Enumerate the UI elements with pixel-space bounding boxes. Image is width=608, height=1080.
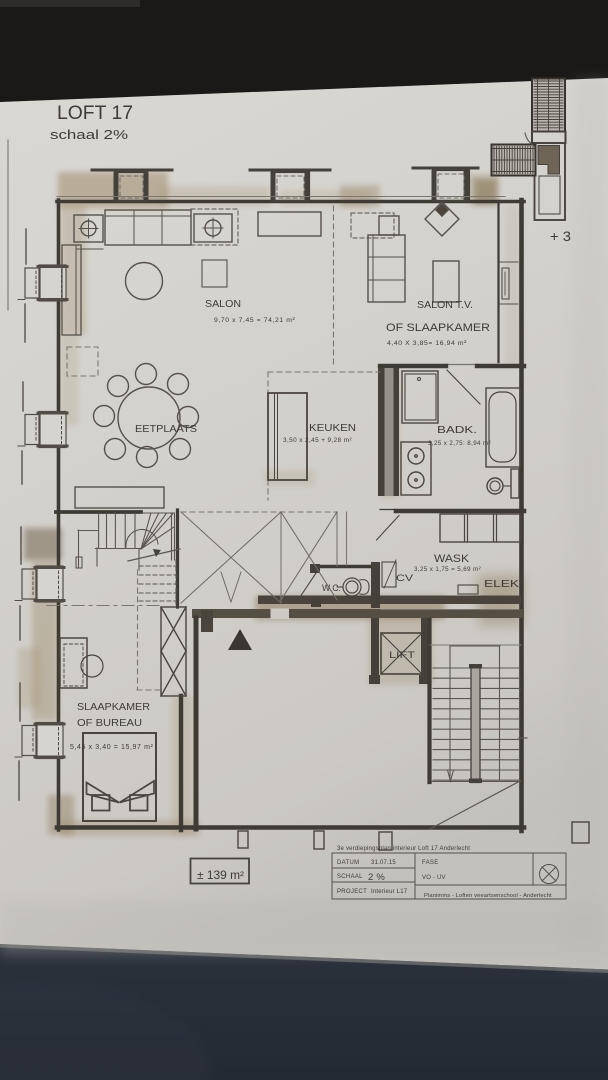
svg-text:+ 3: + 3 xyxy=(550,228,571,244)
svg-text:SCHAAL: SCHAAL xyxy=(337,874,363,880)
svg-text:3e verdiepingsplan interieur L: 3e verdiepingsplan interieur Loft 17 And… xyxy=(337,846,470,852)
svg-text:FASE: FASE xyxy=(422,860,439,866)
svg-text:31.07.15: 31.07.15 xyxy=(371,860,396,866)
svg-text:SLAAPKAMER: SLAAPKAMER xyxy=(77,702,150,713)
svg-text:4,40 X 3,85= 16,94 m²: 4,40 X 3,85= 16,94 m² xyxy=(387,340,467,347)
svg-text:Interieur L17: Interieur L17 xyxy=(371,889,408,895)
svg-text:EETPLAATS: EETPLAATS xyxy=(135,424,198,435)
svg-text:DATUM: DATUM xyxy=(337,860,359,866)
svg-text:3,25 x 1,75 = 5,69 m²: 3,25 x 1,75 = 5,69 m² xyxy=(414,566,481,573)
svg-text:PROJECT: PROJECT xyxy=(337,889,367,895)
svg-text:OF SLAAPKAMER: OF SLAAPKAMER xyxy=(386,322,490,334)
svg-text:BADK.: BADK. xyxy=(437,425,477,436)
svg-text:LOFT 17: LOFT 17 xyxy=(57,103,133,124)
svg-text:5,45 x 3,40 = 15,97 m²: 5,45 x 3,40 = 15,97 m² xyxy=(70,744,154,751)
svg-text:W.C.: W.C. xyxy=(322,583,341,594)
svg-text:OF BUREAU: OF BUREAU xyxy=(77,718,142,729)
svg-text:schaal 2%: schaal 2% xyxy=(50,127,129,142)
svg-text:3,50 x 2,45 + 9,28 m²: 3,50 x 2,45 + 9,28 m² xyxy=(283,437,352,444)
svg-text:9,70 x 7,45 = 74,21 m²: 9,70 x 7,45 = 74,21 m² xyxy=(214,317,296,324)
svg-text:SALON T.V.: SALON T.V. xyxy=(417,300,473,311)
svg-text:± 139 m²: ± 139 m² xyxy=(197,870,244,882)
svg-text:SALON: SALON xyxy=(205,299,241,310)
svg-text:VO - UV: VO - UV xyxy=(422,875,446,881)
svg-text:Planimms - Loften veeartsensch: Planimms - Loften veeartsenschool - Ande… xyxy=(424,893,552,899)
svg-text:3,25 x 2,75: 8,94 m²: 3,25 x 2,75: 8,94 m² xyxy=(428,440,491,447)
svg-text:ELEK: ELEK xyxy=(484,579,520,590)
svg-text:KEUKEN: KEUKEN xyxy=(309,423,356,434)
svg-text:2 %: 2 % xyxy=(368,872,385,883)
svg-text:LIFT: LIFT xyxy=(389,650,415,661)
svg-text:WASK: WASK xyxy=(434,553,470,565)
svg-text:CV: CV xyxy=(396,573,413,583)
